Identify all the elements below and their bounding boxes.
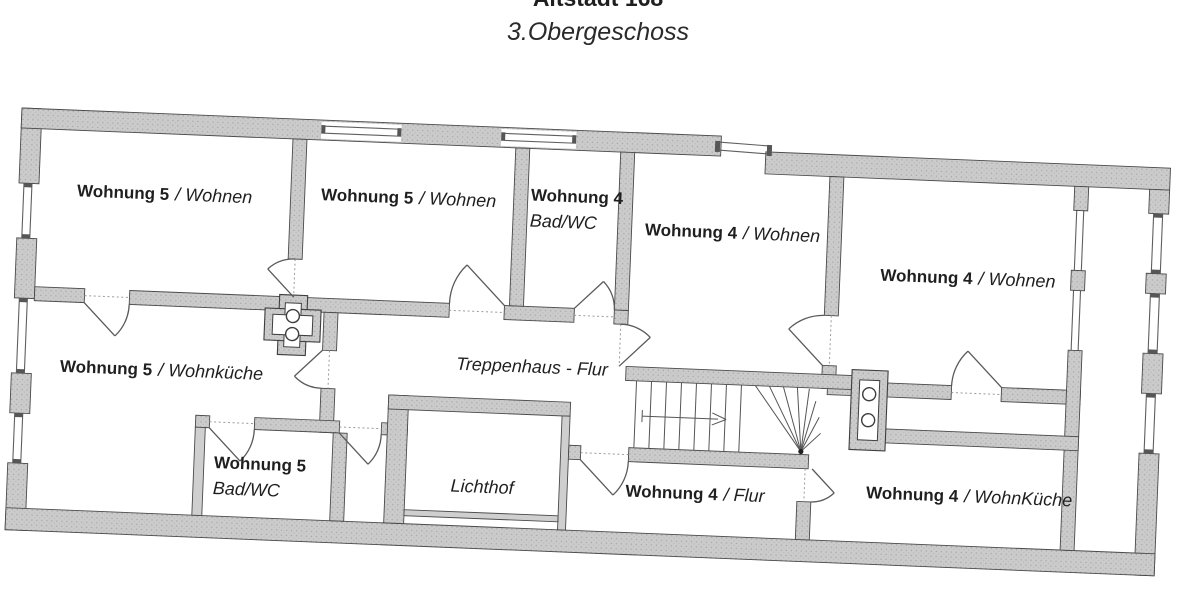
room-label-w4-badwc-type: Bad/WC <box>529 210 598 233</box>
door-icon <box>267 258 296 297</box>
window-icon <box>1148 293 1159 353</box>
building-title: Altstadt 168 <box>533 0 664 11</box>
door-icon <box>787 314 831 366</box>
room-label-w4-flur: Wohnung 4/ Flur <box>625 481 766 507</box>
window-icon <box>715 141 772 156</box>
chimney-icon <box>849 370 888 451</box>
window-icon <box>501 129 577 149</box>
room-label-w5-badwc: Wohnung 5 <box>214 453 307 476</box>
room-labels: Wohnung 5/ Wohnen Wohnung 5/ Wohnen Wohn… <box>55 167 1084 533</box>
door-icon <box>579 453 629 496</box>
window-icon <box>1151 214 1162 274</box>
floorplan-svg: Altstadt 168 3.Obergeschoss <box>0 0 1200 600</box>
room-label-w4-wohnkueche: Wohnung 4/ WohnKüche <box>866 482 1073 510</box>
room-label-w5-wohnen-1: Wohnung 5/ Wohnen <box>77 180 253 207</box>
window-icon <box>16 298 27 373</box>
stairs <box>634 381 823 455</box>
door-icon <box>574 280 615 317</box>
stair-direction-arrow-icon <box>642 410 726 425</box>
room-label-w5-wohnen-2: Wohnung 5/ Wohnen <box>321 184 497 211</box>
room-label-w5-badwc-type: Bad/WC <box>213 478 282 501</box>
window-icon <box>1144 393 1155 453</box>
room-label-w5-wohnkueche: Wohnung 5/ Wohnküche <box>60 356 264 384</box>
door-icon <box>804 469 835 503</box>
door-icon <box>449 264 506 312</box>
window-icon <box>22 183 32 238</box>
room-label-w4-wohnen-2: Wohnung 4/ Wohnen <box>880 265 1056 292</box>
floorplan-page: Altstadt 168 3.Obergeschoss <box>0 0 1200 600</box>
floor-title: 3.Obergeschoss <box>507 18 689 46</box>
floorplan: Wohnung 5/ Wohnen Wohnung 5/ Wohnen Wohn… <box>5 108 1171 576</box>
door-icon <box>83 296 130 337</box>
window-icon <box>13 413 23 463</box>
door-icon <box>619 324 651 367</box>
room-label-lichthof: Lichthof <box>450 476 516 499</box>
door-icon <box>951 351 1003 395</box>
room-label-treppenhaus: Treppenhaus - Flur <box>456 354 609 380</box>
window-icon <box>1071 290 1080 350</box>
window-icon <box>1074 210 1083 270</box>
room-label-w4-wohnen-1: Wohnung 4/ Wohnen <box>645 219 821 246</box>
window-icon <box>321 122 402 142</box>
room-label-w4-badwc: Wohnung 4 <box>531 186 624 209</box>
